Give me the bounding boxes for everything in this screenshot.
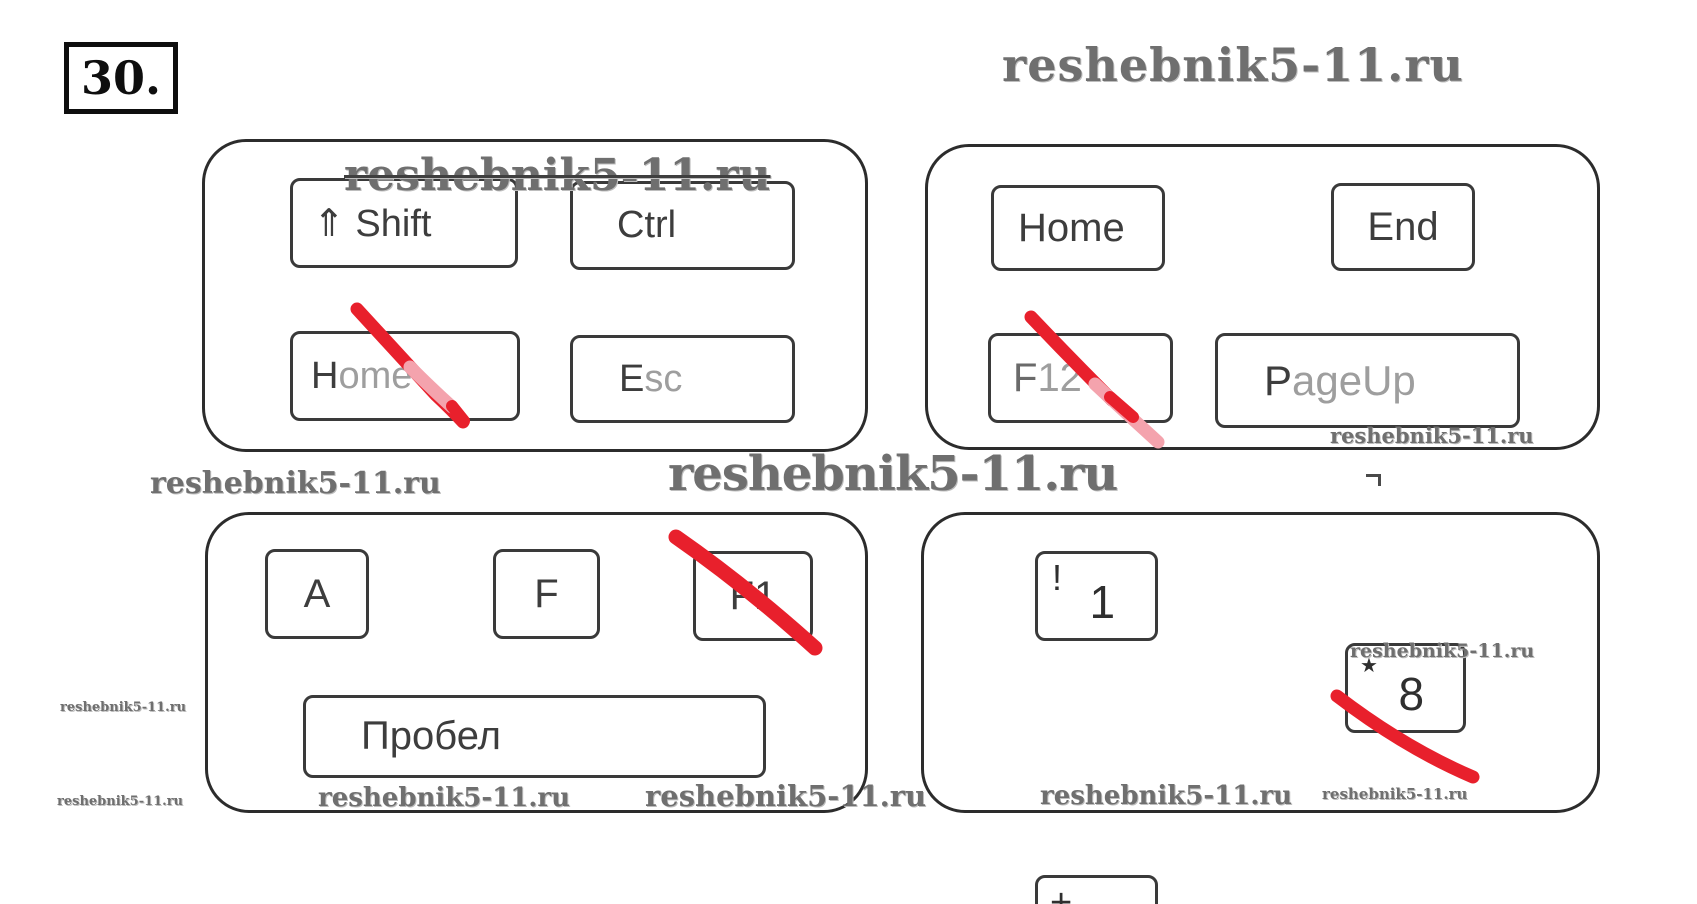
scanned-workbook-page: 30. ⇑ Shift Ctrl Home Esc Home End F12 P… [0,0,1697,904]
key-home: Home [991,185,1165,271]
key-label: 1 [1090,579,1116,625]
key-label: P [1264,357,1292,405]
key-group-panel-bottom-right: ! 1 ★ 8 + = ★ [921,512,1600,813]
watermark-bottom-right-2: reshebnik5-11.ru [1322,785,1467,803]
problem-number: 30. [81,51,161,105]
problem-number-box: 30. [64,42,178,114]
key-esc: Esc [570,335,795,423]
exclamation-symbol: ! [1052,560,1062,596]
key-space: Пробел [303,695,766,778]
key-plus-equals: + = [1035,875,1158,904]
plus-symbol: + [1050,884,1072,904]
key-label: Пробел [361,714,501,759]
key-label: 8 [1398,671,1424,717]
key-exclamation-1: ! 1 [1035,551,1158,641]
key-a: A [265,549,369,639]
key-group-panel-bottom-left: A F F1 Пробел [205,512,868,813]
key-f1-crossed: F1 [693,551,813,641]
key-label: Home [1018,206,1125,251]
key-f12-crossed: F12 [988,333,1173,423]
key-label: F1 [730,574,777,619]
watermark-bottom-left-2: reshebnik5-11.ru [645,779,926,813]
watermark-margin-small-2: reshebnik5-11.ru [57,794,183,809]
key-label: F [534,572,558,617]
key-group-panel-top-right: Home End F12 PageUp [925,144,1600,450]
key-f: F [493,549,600,639]
watermark-panel-top-left: reshebnik5-11.ru [344,150,771,201]
scan-artifact-mark [1366,474,1381,486]
watermark-panel-top-right: reshebnik5-11.ru [1330,423,1534,448]
watermark-bottom-left-1: reshebnik5-11.ru [318,783,570,813]
watermark-panel-bottom-right: reshebnik5-11.ru [1350,640,1534,662]
watermark-bottom-right-1: reshebnik5-11.ru [1040,781,1292,811]
watermark-margin-small-1: reshebnik5-11.ru [60,700,186,715]
key-label: ⇑ Shift [313,201,431,246]
key-pageup: PageUp [1215,333,1520,428]
key-label: Ctrl [617,204,676,247]
key-end: End [1331,183,1475,271]
watermark-top-right: reshebnik5-11.ru [1002,38,1464,92]
key-home-crossed: Home [290,331,520,421]
key-label: E [619,358,644,401]
key-label: H [311,355,338,398]
watermark-middle-left: reshebnik5-11.ru [150,466,441,501]
key-label: End [1367,205,1438,250]
key-label: F [1013,356,1037,401]
watermark-center: reshebnik5-11.ru [668,446,1117,502]
key-label: A [304,572,331,617]
